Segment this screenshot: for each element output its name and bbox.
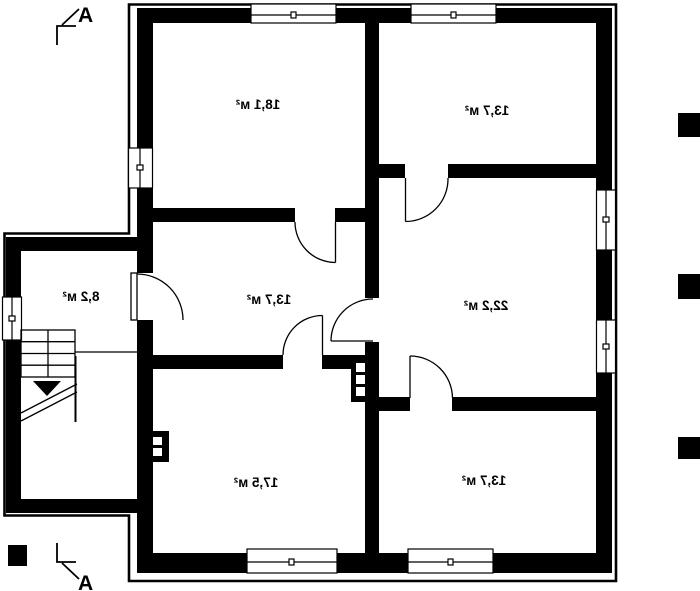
wall-segment [496,8,612,23]
wall-segment [379,164,405,178]
edge-marker-square [678,437,700,459]
room-area-label: 22,2 м² [463,298,508,313]
room-area-label: 18,1 м² [235,97,280,112]
edge-marker-square [678,113,700,137]
section-mark-diagonal [62,9,79,25]
room-area-label: 13,7 м² [464,103,509,118]
edge-marker-square [678,274,700,299]
section-mark-top: A [57,4,93,45]
section-mark-elbow [57,26,76,45]
room-area-label: 8,2 м² [62,289,100,304]
wall-segment [452,397,596,411]
wall-segment [596,373,612,573]
door-icon [331,299,373,341]
wall-segment [493,553,612,573]
wall-segment [6,237,138,251]
wall-segment [336,8,411,23]
door-icon [406,178,449,222]
window-icon [597,320,616,373]
interior-walls [153,23,596,553]
floor-plan-page: 18,1 м² 13,7 м² 8,2 м² 13,7 м² 22,2 м² 1… [0,0,700,591]
wall-segment [448,164,596,178]
window-icon [597,190,616,250]
wall-segment [379,397,410,411]
wall-segment [6,340,21,513]
window-icon [247,549,337,573]
vent-flue-icon [150,431,169,462]
door-icon [283,316,323,356]
door-icon [131,273,183,320]
window-icon [411,4,496,23]
door-icon [295,222,336,263]
stair-break-line [21,392,77,421]
wall-segment [137,553,247,573]
staircase [21,330,137,422]
wall-segment [6,237,21,297]
wall-segment [137,8,251,23]
door-icon [410,356,453,398]
vent-flue-icon [351,355,379,402]
section-mark-diagonal [62,563,79,579]
wall-segment [137,8,153,148]
section-letter-bottom: A [78,572,93,591]
wall-segment [337,553,408,573]
room-area-label: 13,7 м² [246,292,291,307]
wall-segment [596,8,612,190]
window-icon [408,549,493,573]
floor-plan-drawing: 18,1 м² 13,7 м² 8,2 м² 13,7 м² 22,2 м² 1… [0,0,700,591]
section-mark-bottom: A [57,543,93,591]
wall-segment [365,23,379,298]
edge-marker-square [8,545,27,566]
section-letter-top: A [78,4,93,27]
window-icon [129,148,153,188]
vent-blocks [150,355,379,462]
wall-segment [153,208,295,222]
section-mark-elbow [57,543,76,562]
wall-segment [137,188,153,273]
wall-segment [596,250,612,320]
wall-segment [6,499,153,513]
room-area-label: 13,7 м² [461,473,506,488]
wall-segment [335,208,365,222]
window-icon [3,297,22,340]
wall-segment [153,355,283,369]
room-area-label: 17,5 м² [233,475,278,490]
window-icon [251,4,336,23]
